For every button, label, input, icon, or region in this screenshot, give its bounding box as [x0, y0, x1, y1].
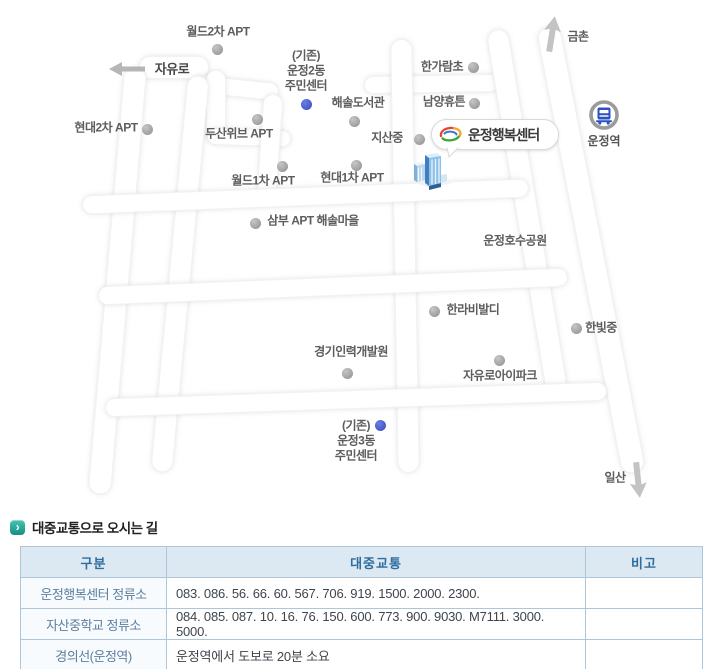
world2-apt-label: 월드2차 APT — [186, 25, 249, 40]
row-transit: 운정역에서 도보로 20분 소요 — [167, 640, 586, 669]
transport-table: 구분 대중교통 비고 운정행복센터 정류소 083. 086. 56. 66. … — [20, 546, 703, 669]
road — [391, 40, 419, 472]
arrow-down-icon — [625, 461, 651, 499]
doosan-weve-apt-label: 두산위브 APT — [205, 127, 273, 142]
ilsan-label: 일산 — [604, 471, 625, 486]
haesol-library-marker-dot — [349, 116, 360, 127]
row-category: 운정행복센터 정류소 — [21, 578, 167, 609]
unjeong-station-label: 운정역 — [587, 132, 620, 149]
row-note — [586, 578, 703, 609]
col-header-note: 비고 — [586, 547, 703, 578]
col-header-transit: 대중교통 — [167, 547, 586, 578]
hanbit-middle-label: 한빛중 — [585, 321, 617, 336]
arrow-left-icon — [108, 61, 146, 77]
row-category: 자산중학교 정류소 — [21, 609, 167, 640]
jayuro-ipark-marker-dot — [494, 355, 505, 366]
table-row: 운정행복센터 정류소 083. 086. 56. 66. 60. 567. 70… — [21, 578, 703, 609]
jayuro-road-label: 자유로 — [155, 62, 189, 77]
existing-unjeong2-center-label: (기존) 운정2동 주민센터 — [285, 49, 327, 94]
road — [537, 26, 645, 474]
existing-unjeong3-center-label: (기존) 운정3동 주민센터 — [335, 419, 377, 464]
map-area: 운정행복센터 운정역 월드2차 APT자유로(기존) 운정2동 주민센터해솔도서… — [0, 0, 713, 512]
hyundai1-apt-label: 현대1차 APT — [320, 171, 383, 186]
jayuro-ipark-label: 자유로아이파크 — [463, 369, 537, 384]
jisan-middle-marker-dot — [414, 134, 425, 145]
row-category: 경의선(운정역) — [21, 640, 167, 669]
col-header-category: 구분 — [21, 547, 167, 578]
table-row: 경의선(운정역) 운정역에서 도보로 20분 소요 — [21, 640, 703, 669]
row-note — [586, 640, 703, 669]
row-transit: 083. 086. 56. 66. 60. 567. 706. 919. 150… — [167, 578, 586, 609]
road — [365, 75, 499, 93]
haesol-library-label: 해솔도서관 — [332, 96, 385, 111]
sambu-apt-haesol-label: 삼부 APT 해솔마을 — [267, 214, 358, 229]
world1-apt-marker-dot — [277, 161, 288, 172]
happiness-center-callout-label: 운정행복센터 — [468, 125, 539, 145]
row-transit: 084. 085. 087. 10. 16. 76. 150. 600. 773… — [167, 609, 586, 640]
callout-tail — [445, 147, 461, 158]
gyeonggi-hrd-center-label: 경기인력개발원 — [314, 345, 388, 360]
world2-apt-marker-dot — [212, 44, 223, 55]
hyundai1-apt-marker-dot — [351, 160, 362, 171]
existing-unjeong2-center-marker-dot — [301, 99, 312, 110]
table-header-row: 구분 대중교통 비고 — [21, 547, 703, 578]
paju-city-logo — [437, 124, 464, 145]
row-note — [586, 609, 703, 640]
gimchon-label: 금촌 — [567, 30, 588, 45]
world1-apt-label: 월드1차 APT — [231, 174, 294, 189]
road — [106, 383, 606, 417]
unjeong-lake-park-label: 운정호수공원 — [483, 234, 546, 249]
namyang-hueton-label: 남양휴튼 — [423, 95, 465, 110]
transport-heading-label: 대중교통으로 오시는 길 — [32, 517, 158, 537]
road — [83, 179, 528, 213]
halla-vivaldi-marker-dot — [429, 306, 440, 317]
transport-section-heading: › 대중교통으로 오시는 길 — [10, 517, 158, 537]
happiness-center-callout: 운정행복센터 — [431, 119, 559, 150]
hangaram-elementary-label: 한가람초 — [421, 60, 463, 75]
hangaram-elementary-marker-dot — [468, 62, 479, 73]
gyeonggi-hrd-center-marker-dot — [342, 368, 353, 379]
unjeong-station: 운정역 — [589, 100, 619, 149]
table-row: 자산중학교 정류소 084. 085. 087. 10. 16. 76. 150… — [21, 609, 703, 640]
hyundai2-apt-marker-dot — [142, 124, 153, 135]
namyang-hueton-marker-dot — [469, 98, 480, 109]
sambu-apt-haesol-marker-dot — [250, 218, 261, 229]
hyundai2-apt-label: 현대2차 APT — [74, 121, 137, 136]
chevron-right-icon: › — [10, 520, 25, 535]
hanbit-middle-marker-dot — [571, 323, 582, 334]
jisan-middle-label: 지산중 — [371, 131, 403, 146]
page: 운정행복센터 운정역 월드2차 APT자유로(기존) 운정2동 주민센터해솔도서… — [0, 0, 713, 669]
doosan-weve-apt-marker-dot — [252, 114, 263, 125]
halla-vivaldi-label: 한라비발디 — [447, 303, 500, 318]
train-station-icon — [589, 100, 619, 130]
